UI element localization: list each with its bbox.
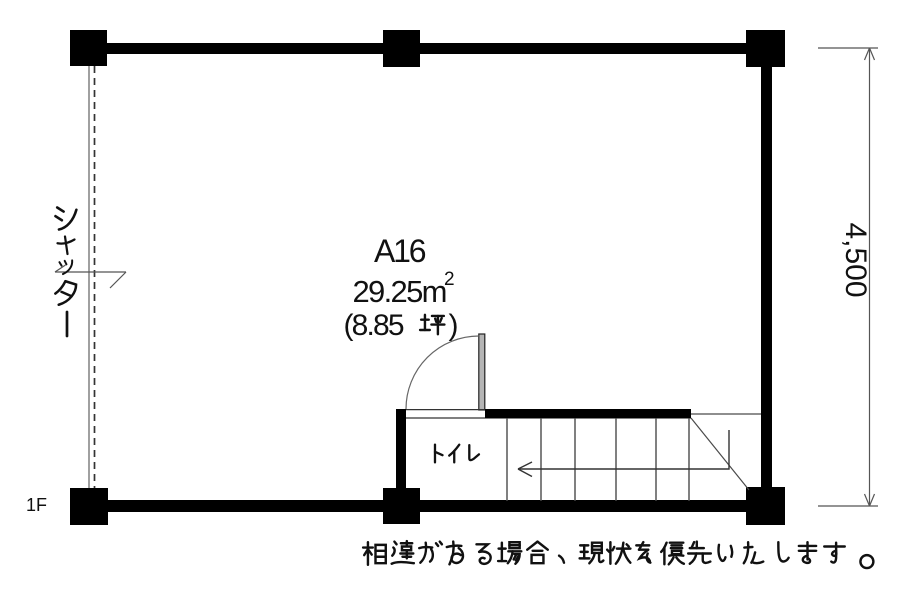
svg-text:A16: A16: [374, 233, 427, 269]
svg-text:1F: 1F: [26, 495, 47, 515]
svg-text:): ): [449, 309, 459, 342]
svg-text:4,500: 4,500: [839, 222, 872, 297]
svg-text:29.25m: 29.25m: [353, 274, 448, 309]
svg-text:(8.85: (8.85: [344, 309, 405, 342]
svg-text:2: 2: [444, 269, 455, 290]
